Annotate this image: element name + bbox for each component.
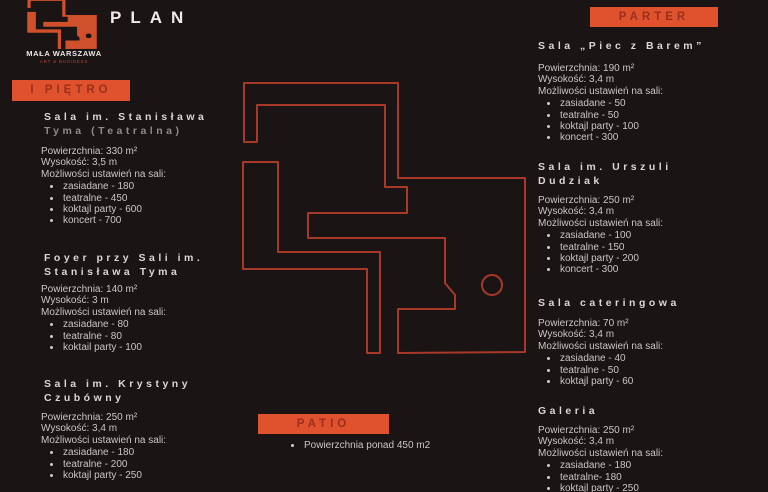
room-option: koktail party - 100 <box>41 342 276 353</box>
room-option: zasiadane - 180 <box>41 181 276 192</box>
room-section-foyer: Foyer przy Sali im. Stanisława Tyma <box>44 252 203 279</box>
room-options-list: zasiadane - 180 teatralne - 200 koktajl … <box>41 447 276 481</box>
room-title-line2: Stanisława Tyma <box>44 266 203 280</box>
room-title-line1: Sala cateringowa <box>538 297 680 311</box>
room-area: Powierzchnia: 250 m² <box>41 412 276 423</box>
room-option: zasiadane - 180 <box>538 460 768 471</box>
room-option: zasiadane - 180 <box>41 447 276 458</box>
room-option: koktajl party - 600 <box>41 204 276 215</box>
room-height: Wysokość: 3,4 m <box>41 423 276 434</box>
room-details-czubowny: Powierzchnia: 250 m² Wysokość: 3,4 m Moż… <box>41 412 276 481</box>
room-option: koktajl party - 60 <box>538 376 768 387</box>
room-title-line1: Sala im. Urszuli <box>538 161 672 175</box>
room-section-dudziak: Sala im. Urszuli Dudziak <box>538 161 672 188</box>
room-options-label: Możliwości ustawień na sali: <box>538 448 768 459</box>
room-title-line1: Sala im. Krystyny <box>44 378 191 392</box>
floorplan-outline-main <box>244 83 525 353</box>
room-option: koncert - 300 <box>538 264 768 275</box>
room-section-cateringowa: Sala cateringowa <box>538 297 680 311</box>
room-option: koktajl party - 250 <box>538 483 768 492</box>
room-option: teatralne - 200 <box>41 459 276 470</box>
room-options-list: zasiadane - 50 teatralne - 50 koktajl pa… <box>538 98 768 144</box>
room-options-list: zasiadane - 100 teatralne - 150 koktajl … <box>538 230 768 276</box>
room-details-piec-z-barem: Powierzchnia: 190 m² Wysokość: 3,4 m Moż… <box>538 63 768 144</box>
room-section-piec-z-barem: Sala „Piec z Barem” <box>538 40 705 54</box>
room-options-list: zasiadane - 40 teatralne - 50 koktajl pa… <box>538 353 768 387</box>
room-options-label: Możliwości ustawień na sali: <box>538 218 768 229</box>
room-option: zasiadane - 80 <box>41 319 276 330</box>
room-options-label: Możliwości ustawień na sali: <box>538 341 768 352</box>
room-area: Powierzchnia: 250 m² <box>538 195 768 206</box>
room-title-line1: Foyer przy Sali im. <box>44 252 203 266</box>
room-option: zasiadane - 40 <box>538 353 768 364</box>
room-option: koktajl party - 100 <box>538 121 768 132</box>
room-title-line2: Tyma (Teatralna) <box>44 125 207 139</box>
room-height: Wysokość: 3,5 m <box>41 157 276 168</box>
room-options-label: Możliwości ustawień na sali: <box>538 86 768 97</box>
room-details-galeria: Powierzchnia: 250 m² Wysokość: 3,4 m Moż… <box>538 425 768 492</box>
room-option: koncert - 700 <box>41 215 276 226</box>
room-options-label: Możliwości ustawień na sali: <box>41 435 276 446</box>
ground-floor-badge: PARTER <box>590 7 718 27</box>
room-area: Powierzchnia: 330 m² <box>41 146 276 157</box>
room-area: Powierzchnia: 70 m² <box>538 318 768 329</box>
room-options-list: zasiadane - 80 teatralne - 80 koktail pa… <box>41 319 276 353</box>
room-options-label: Możliwości ustawień na sali: <box>41 307 276 318</box>
room-height: Wysokość: 3,4 m <box>538 329 768 340</box>
room-height: Wysokość: 3,4 m <box>538 74 768 85</box>
room-option: zasiadane - 50 <box>538 98 768 109</box>
room-option: teatralne - 50 <box>538 110 768 121</box>
room-details-foyer: Powierzchnia: 140 m² Wysokość: 3 m Możli… <box>41 284 276 353</box>
room-option: koncert - 300 <box>538 132 768 143</box>
room-options-label: Możliwości ustawień na sali: <box>41 169 276 180</box>
room-option: teatralne- 180 <box>538 472 768 483</box>
patio-note: Powierzchnia ponad 450 m2 <box>282 440 430 451</box>
room-option: teatralne - 80 <box>41 331 276 342</box>
room-options-list: zasiadane - 180 teatralne - 450 koktajl … <box>41 181 276 227</box>
room-options-list: zasiadane - 180 teatralne- 180 koktajl p… <box>538 460 768 492</box>
room-section-tyma: Sala im. Stanisława Tyma (Teatralna) <box>44 111 207 138</box>
room-option: teatralne - 150 <box>538 242 768 253</box>
brand-tagline: ART & BUSINESS <box>24 59 104 64</box>
patio-badge: PATIO <box>258 414 389 434</box>
room-option: koktajl party - 250 <box>41 470 276 481</box>
room-title-line1: Galeria <box>538 405 598 419</box>
brand-name: MAŁA WARSZAWA <box>24 49 104 58</box>
room-section-czubowny: Sala im. Krystyny Czubówny <box>44 378 191 405</box>
room-height: Wysokość: 3 m <box>41 295 276 306</box>
room-details-dudziak: Powierzchnia: 250 m² Wysokość: 3,4 m Moż… <box>538 195 768 276</box>
floor1-badge: I PIĘTRO <box>12 80 130 101</box>
room-details-cateringowa: Powierzchnia: 70 m² Wysokość: 3,4 m Możl… <box>538 318 768 387</box>
room-height: Wysokość: 3,4 m <box>538 206 768 217</box>
room-area: Powierzchnia: 140 m² <box>41 284 276 295</box>
room-title-line1: Sala „Piec z Barem” <box>538 40 705 54</box>
room-area: Powierzchnia: 190 m² <box>538 63 768 74</box>
room-option: zasiadane - 100 <box>538 230 768 241</box>
room-title-line2: Czubówny <box>44 392 191 406</box>
room-height: Wysokość: 3,4 m <box>538 436 768 447</box>
room-details-tyma: Powierzchnia: 330 m² Wysokość: 3,5 m Moż… <box>41 146 276 227</box>
room-option: teatralne - 450 <box>41 193 276 204</box>
page: MAŁA WARSZAWA ART & BUSINESS PLAN I PIĘT… <box>0 0 768 492</box>
room-option: teatralne - 50 <box>538 365 768 376</box>
room-option: koktajl party - 200 <box>538 253 768 264</box>
room-title-line2: Dudziak <box>538 175 672 189</box>
page-title: PLAN <box>110 8 192 28</box>
floorplan-column-circle <box>482 275 502 295</box>
room-area: Powierzchnia: 250 m² <box>538 425 768 436</box>
room-title-line1: Sala im. Stanisława <box>44 111 207 125</box>
room-section-galeria: Galeria <box>538 405 598 419</box>
logo-icon <box>26 0 98 50</box>
